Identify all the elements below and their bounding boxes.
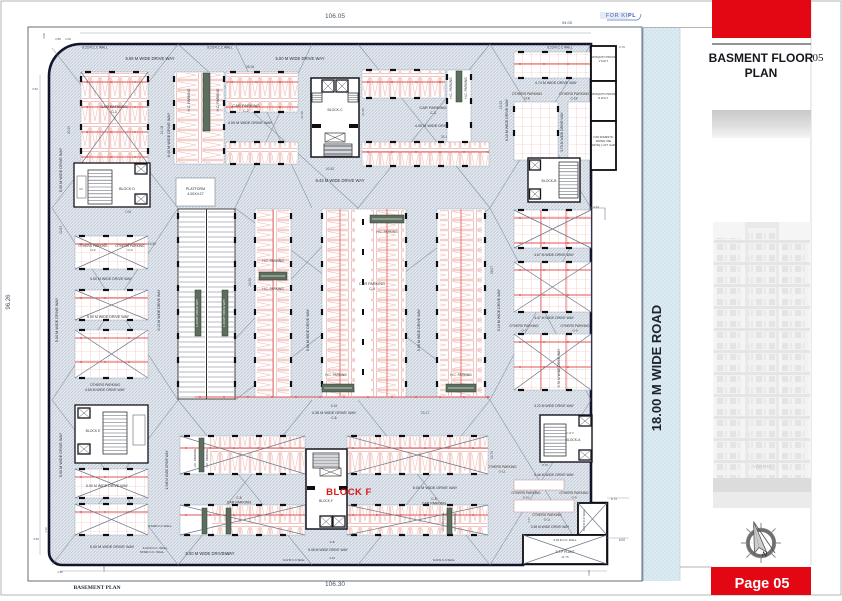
svg-text:6.23 R.C.C WALL: 6.23 R.C.C WALL	[547, 46, 572, 50]
svg-text:S.T.P PLANT: S.T.P PLANT	[556, 550, 575, 554]
svg-text:O-9: O-9	[571, 496, 576, 500]
svg-text:O-12: O-12	[499, 470, 506, 474]
svg-text:05: 05	[813, 52, 825, 64]
svg-text:OTHERS PARKING: OTHERS PARKING	[560, 324, 590, 328]
svg-text:BLOCK F: BLOCK F	[326, 487, 372, 498]
svg-text:3.00: 3.00	[42, 33, 46, 39]
svg-text:8.70: 8.70	[611, 497, 617, 501]
svg-text:3.38 M WIDE DRIVE WAY: 3.38 M WIDE DRIVE WAY	[531, 525, 570, 529]
svg-text:6.10 M WIDE DRIVE WAY: 6.10 M WIDE DRIVE WAY	[157, 289, 161, 331]
svg-text:H.C. PARKING: H.C. PARKING	[464, 77, 468, 99]
svg-text:1.20 MT DRIVE WAY: 1.20 MT DRIVE WAY	[195, 299, 199, 327]
svg-text:H.C. PARKING: H.C. PARKING	[216, 88, 220, 111]
svg-text:0.88: 0.88	[55, 37, 61, 41]
svg-text:19.23: 19.23	[499, 101, 503, 110]
svg-text:H.C. PARKING: H.C. PARKING	[450, 373, 472, 377]
svg-text:C-3: C-3	[430, 111, 436, 115]
svg-text:H.C. PARKING: H.C. PARKING	[187, 88, 191, 111]
svg-text:18.00 M WIDE ROAD: 18.00 M WIDE ROAD	[649, 305, 664, 431]
svg-text:H.C. PARKING: H.C. PARKING	[449, 77, 453, 99]
svg-text:PLAN: PLAN	[745, 66, 778, 80]
svg-text:4.65 M WIDE DRIVE WAY: 4.65 M WIDE DRIVE WAY	[85, 388, 125, 392]
svg-text:5.00 M WIDE DRIVE WAY: 5.00 M WIDE DRIVE WAY	[59, 432, 63, 477]
svg-text:H.C. PARKING: H.C. PARKING	[193, 449, 197, 468]
svg-text:9.23 R.C.C WALL: 9.23 R.C.C WALL	[433, 558, 456, 562]
svg-text:4.23: 4.23	[329, 556, 335, 560]
svg-text:H.C. PARKING: H.C. PARKING	[205, 449, 209, 468]
svg-text:4.67 M WIDE DRIVE WAY: 4.67 M WIDE DRIVE WAY	[534, 253, 574, 257]
svg-text:C-8: C-8	[236, 496, 241, 500]
svg-text:5.66 M WIDE DRIVE WAY: 5.66 M WIDE DRIVE WAY	[306, 308, 310, 351]
svg-text:6.10 M WIDE DRIVE WAY: 6.10 M WIDE DRIVE WAY	[505, 98, 509, 141]
svg-text:96.26: 96.26	[6, 294, 12, 310]
svg-text:8.40 M WIDE DRIVE WAY: 8.40 M WIDE DRIVE WAY	[167, 112, 171, 157]
svg-text:C-18: C-18	[571, 97, 578, 101]
svg-text:UP: UP	[79, 187, 83, 191]
svg-text:5.00 M WIDE DRIVE WAY: 5.00 M WIDE DRIVE WAY	[275, 56, 324, 61]
svg-text:BLOCK-F: BLOCK-F	[319, 499, 333, 503]
svg-text:OTHERS PARKING: OTHERS PARKING	[512, 92, 542, 96]
svg-text:6.23 R.C.C WALL: 6.23 R.C.C WALL	[582, 508, 586, 531]
svg-text:C-8: C-8	[431, 497, 436, 501]
svg-text:22.63: 22.63	[59, 226, 63, 234]
svg-text:MOSQUITO PROOF: MOSQUITO PROOF	[591, 92, 615, 96]
svg-text:23.17: 23.17	[421, 411, 430, 415]
svg-text:CAR PARKING: CAR PARKING	[100, 104, 127, 109]
svg-text:5.06 M WIDE DRIVE WAY: 5.06 M WIDE DRIVE WAY	[125, 56, 174, 61]
svg-text:BASMENT FLOOR: BASMENT FLOOR	[709, 51, 814, 65]
svg-text:BLOCK D: BLOCK D	[119, 187, 135, 191]
svg-text:CAR PARKING: CAR PARKING	[359, 282, 385, 286]
svg-text:3.78 M WIDE DRIVE WAY: 3.78 M WIDE DRIVE WAY	[557, 348, 561, 387]
svg-text:O-7: O-7	[521, 329, 526, 333]
svg-text:9.23 R.C.C WALL: 9.23 R.C.C WALL	[283, 558, 306, 562]
svg-text:C-2: C-2	[243, 109, 249, 113]
svg-text:1.20 MT DRIVE WAY: 1.20 MT DRIVE WAY	[222, 299, 226, 327]
svg-text:OTHERS PARKING: OTHERS PARKING	[487, 465, 517, 469]
svg-text:C-8: C-8	[330, 540, 335, 544]
svg-text:OTHERS PARKING: OTHERS PARKING	[559, 92, 589, 96]
svg-text:3.00: 3.00	[102, 566, 106, 572]
svg-text:4.74 M WIDE DRIVE WAY: 4.74 M WIDE DRIVE WAY	[535, 81, 578, 85]
svg-text:MOSQUITO PROOF: MOSQUITO PROOF	[591, 55, 615, 59]
svg-text:4.33: 4.33	[593, 205, 599, 209]
svg-text:94.05: 94.05	[562, 20, 573, 25]
svg-text:4.00 M WIDE DRIVE WAY: 4.00 M WIDE DRIVE WAY	[228, 121, 273, 125]
svg-text:21.08: 21.08	[300, 111, 304, 119]
svg-text:24.50: 24.50	[248, 278, 252, 286]
svg-text:8.79: 8.79	[542, 463, 548, 467]
svg-text:3.52: 3.52	[32, 87, 38, 91]
svg-text:1.10: 1.10	[44, 527, 48, 533]
svg-text:5.00 M WIDE DRIVE WAY: 5.00 M WIDE DRIVE WAY	[90, 545, 135, 549]
svg-text:BLOCK-C: BLOCK-C	[327, 108, 343, 112]
svg-text:H.C. PARKING: H.C. PARKING	[262, 259, 284, 263]
svg-text:WATER USE: WATER USE	[596, 139, 611, 143]
svg-text:2.06: 2.06	[65, 37, 71, 41]
svg-text:1.98: 1.98	[57, 570, 63, 574]
svg-text:H.C. PARKING: H.C. PARKING	[262, 287, 284, 291]
svg-text:H.C. PARKING: H.C. PARKING	[376, 230, 398, 234]
svg-text:3.22 M WIDE DRIVE WAY: 3.22 M WIDE DRIVE WAY	[534, 404, 574, 408]
svg-text:28.27: 28.27	[223, 552, 231, 556]
svg-text:0.70: 0.70	[619, 45, 625, 49]
svg-text:OTHERS PARKING: OTHERS PARKING	[90, 383, 120, 387]
svg-text:O-6: O-6	[524, 97, 530, 101]
svg-text:20.15: 20.15	[67, 126, 71, 134]
svg-text:11.75: 11.75	[561, 555, 569, 559]
svg-text:CAR PARKING: CAR PARKING	[419, 105, 446, 110]
svg-text:H.C. PARKING: H.C. PARKING	[441, 513, 445, 532]
svg-text:1.348 M WIDE DRIVE WAY: 1.348 M WIDE DRIVE WAY	[165, 450, 169, 490]
svg-text:O-9: O-9	[572, 329, 577, 333]
svg-text:CAR PARKING: CAR PARKING	[422, 502, 447, 506]
svg-text:5.00 M WIDE DRIVE WAY: 5.00 M WIDE DRIVE WAY	[87, 315, 130, 319]
svg-text:VIVANTA: VIVANTA	[753, 464, 772, 469]
svg-text:O-2: O-2	[90, 248, 95, 252]
svg-text:3.75 M WIDE DRIVE WAY: 3.75 M WIDE DRIVE WAY	[560, 111, 564, 151]
svg-text:3.52: 3.52	[33, 537, 39, 541]
svg-text:STAIR C.C WALL: STAIR C.C WALL	[148, 524, 172, 528]
svg-text:5.66 M WIDE DRIVE WAY: 5.66 M WIDE DRIVE WAY	[417, 308, 421, 351]
svg-text:6.23 R.C.C WALL: 6.23 R.C.C WALL	[82, 46, 107, 50]
svg-text:4.00 M WIDE DRIVE WAY: 4.00 M WIDE DRIVE WAY	[90, 277, 133, 281]
svg-text:5.00 M WIDE DRIVE WAY: 5.00 M WIDE DRIVE WAY	[59, 147, 63, 192]
svg-text:OTHERS PARKING: OTHERS PARKING	[511, 491, 541, 495]
svg-text:OTHERS PARKING: OTHERS PARKING	[532, 513, 562, 517]
svg-text:5.00 M WIDE DRIVE WAY: 5.00 M WIDE DRIVE WAY	[55, 297, 59, 342]
svg-text:FOR DOMESTIC: FOR DOMESTIC	[594, 135, 614, 139]
svg-text:R.W.H.T.: R.W.H.T.	[598, 96, 609, 100]
svg-text:V.S.W.T.: V.S.W.T.	[599, 59, 609, 63]
svg-text:28.26: 28.26	[246, 65, 255, 69]
svg-text:14.79: 14.79	[490, 451, 494, 459]
svg-text:(MOSQ.) LIFT. GAR.: (MOSQ.) LIFT. GAR.	[592, 143, 616, 147]
svg-text:C-6: C-6	[331, 416, 336, 420]
svg-text:C-4: C-4	[369, 287, 375, 291]
svg-text:21.08: 21.08	[160, 126, 164, 135]
svg-text:4.47 M WIDE DRIVE WAY: 4.47 M WIDE DRIVE WAY	[534, 316, 574, 320]
svg-text:5.46 M WIDE DRIVE WAY: 5.46 M WIDE DRIVE WAY	[534, 473, 574, 477]
svg-text:OTHERS PARKING: OTHERS PARKING	[509, 324, 539, 328]
svg-text:OTHERS PARKING: OTHERS PARKING	[559, 491, 589, 495]
svg-text:106.30: 106.30	[325, 581, 345, 588]
svg-text:H.C. PARKING: H.C. PARKING	[325, 373, 347, 377]
svg-text:BLOCK-A: BLOCK-A	[566, 438, 582, 442]
svg-text:STAIR C.C. WALL: STAIR C.C. WALL	[140, 550, 165, 554]
svg-text:6.23 R.C.C WALL: 6.23 R.C.C WALL	[207, 46, 232, 50]
svg-text:6.23 R.C.C. WALL: 6.23 R.C.C. WALL	[143, 546, 168, 550]
svg-text:106.05: 106.05	[325, 13, 345, 20]
svg-text:4.77: 4.77	[527, 517, 531, 523]
svg-text:CAR PARKING: CAR PARKING	[227, 501, 252, 505]
svg-text:6.23 R.C.C. WALL: 6.23 R.C.C. WALL	[554, 538, 577, 542]
svg-text:6.16: 6.16	[331, 404, 337, 408]
svg-text:CAR PARKING: CAR PARKING	[232, 103, 259, 108]
svg-text:4.35 M WIDE DRIVE WAY: 4.35 M WIDE DRIVE WAY	[312, 411, 357, 415]
svg-text:O-10: O-10	[523, 496, 530, 500]
svg-text:5.00 M WIDE DRIVE WAY: 5.00 M WIDE DRIVE WAY	[86, 484, 129, 488]
svg-text:C-1: C-1	[111, 110, 117, 114]
svg-text:H.C. PARKING: H.C. PARKING	[453, 513, 457, 532]
svg-text:BASEMENT PLAN: BASEMENT PLAN	[73, 585, 120, 591]
svg-text:O-3: O-3	[127, 248, 132, 252]
svg-text:16.90: 16.90	[148, 242, 156, 246]
svg-text:9.43 M WIDE DRIVE WAY: 9.43 M WIDE DRIVE WAY	[315, 178, 364, 183]
svg-text:3.00: 3.00	[587, 570, 591, 576]
svg-text:21.08: 21.08	[361, 108, 365, 116]
svg-text:42.82: 42.82	[326, 167, 335, 171]
svg-text:Page 05: Page 05	[735, 576, 790, 592]
svg-text:6.00 M WIDE DRIVE WAY: 6.00 M WIDE DRIVE WAY	[413, 486, 458, 490]
svg-text:5.08 M WIDE DRIVE WAY: 5.08 M WIDE DRIVE WAY	[308, 548, 348, 552]
svg-text:BLOCK-B: BLOCK-B	[542, 179, 558, 183]
svg-text:BLOCK E: BLOCK E	[86, 429, 101, 433]
svg-text:PLATFORM: PLATFORM	[186, 187, 205, 191]
svg-text:6.00: 6.00	[619, 538, 625, 542]
svg-text:7.06: 7.06	[125, 210, 131, 214]
svg-text:5.10 M WIDE DRIVE WAY: 5.10 M WIDE DRIVE WAY	[497, 288, 501, 331]
svg-text:O-11: O-11	[544, 518, 551, 522]
svg-text:4.00X4.27: 4.00X4.27	[187, 192, 203, 196]
svg-text:2.10 X: 2.10 X	[566, 431, 574, 435]
svg-text:26.07: 26.07	[490, 266, 494, 274]
